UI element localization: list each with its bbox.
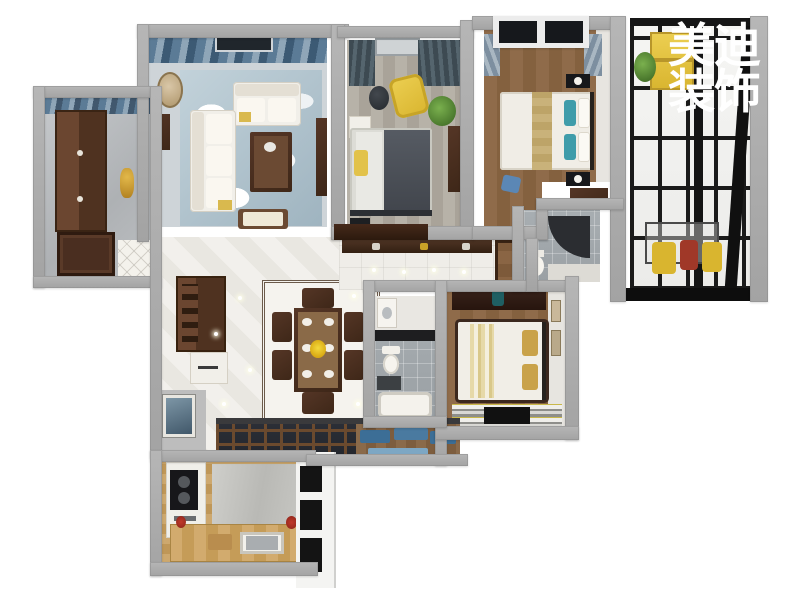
wall-bath-bed3 — [435, 280, 447, 430]
round-side-table — [369, 86, 389, 110]
brand-watermark: 美迪 装饰 — [668, 24, 760, 116]
dining-chair-bottom — [302, 392, 334, 414]
dining-chair-right1 — [344, 312, 364, 342]
ceiling-light — [214, 332, 218, 336]
coffee-table-decor — [264, 142, 276, 152]
middle-bedroom-window — [375, 38, 420, 56]
wall-bed3-right — [565, 276, 579, 440]
plate2 — [324, 318, 334, 326]
wall-laundry-bottom — [306, 454, 468, 466]
plate5 — [302, 370, 312, 378]
wall-kitchen-bottom — [150, 562, 318, 576]
south-striped-rug — [452, 404, 562, 427]
plate6 — [324, 370, 334, 378]
master-window-pane2 — [545, 21, 583, 43]
sofa-left-back — [192, 112, 204, 210]
burner2 — [178, 492, 190, 504]
console-decor3 — [462, 243, 470, 250]
foyer-gold-decor — [120, 168, 134, 198]
sofa-left — [190, 110, 236, 212]
living-bench — [238, 209, 288, 229]
middle-bedroom-dresser — [448, 126, 460, 192]
ceiling-light — [372, 268, 376, 272]
potted-plant — [428, 96, 456, 126]
middle-bedroom-curtain-right — [418, 40, 460, 86]
balcony-chair-yellow2 — [702, 242, 722, 272]
master-bed — [500, 92, 594, 170]
ceiling-light — [238, 296, 242, 300]
sofa-left-cushion1 — [206, 114, 232, 144]
hallway-console — [342, 240, 492, 253]
bathroom-vanity-counter — [377, 298, 397, 328]
ceiling-light — [462, 270, 466, 274]
south-bed-runner — [470, 324, 494, 398]
toilet-bowl — [383, 354, 399, 374]
bath-mat — [377, 376, 401, 390]
foyer-cabinet-panel — [57, 232, 115, 276]
balcony-bottom-frame — [612, 288, 758, 301]
living-room-window — [215, 36, 273, 52]
dining-lower-cabinet — [190, 352, 228, 384]
south-bed-pillow-gold1 — [522, 330, 538, 356]
living-bench-cushion — [243, 212, 283, 226]
wall-bed2-top — [337, 26, 474, 38]
sofa-left-cushion2 — [206, 146, 232, 176]
wall-master-bottom-right — [536, 198, 624, 210]
wall-hall-south — [363, 280, 577, 292]
dining-chair-left2 — [272, 350, 292, 380]
sofa-top-back — [235, 84, 299, 96]
balcony-chair-yellow1 — [652, 242, 676, 274]
master-bed-runner — [532, 92, 552, 170]
coffee-table — [250, 132, 292, 192]
stove — [170, 470, 198, 510]
dining-chair-top — [302, 288, 334, 308]
vanity-sink — [382, 307, 392, 319]
wall-living-top — [137, 24, 349, 38]
sofa-top — [233, 82, 301, 126]
wall-bath-bottom — [363, 416, 447, 428]
master-bed-pillow-white2 — [578, 132, 590, 162]
floorplan-render: 美迪 装饰 — [0, 0, 798, 592]
south-bed — [458, 322, 546, 400]
ceiling-light — [356, 402, 360, 406]
cutting-board — [208, 534, 232, 550]
kitchen-window-pane1 — [300, 466, 322, 492]
wall-kitchen-top — [150, 450, 316, 462]
middle-bed-headboard — [350, 210, 432, 216]
wall-west-spine — [150, 86, 162, 458]
middle-bedroom-curtain-left — [349, 40, 375, 86]
foyer-wardrobe-knob2 — [77, 196, 83, 202]
dining-flowers — [310, 340, 326, 358]
foyer-wardrobe-knob1 — [77, 150, 83, 156]
sofa-top-cushion2 — [268, 98, 296, 122]
balcony-plant — [634, 52, 656, 82]
balcony-chair-red — [680, 240, 698, 270]
toilet-tank — [382, 346, 400, 354]
master-bed-pillow-white1 — [578, 98, 590, 128]
wall-master-right — [610, 16, 626, 302]
wall-hall-right — [526, 238, 538, 292]
middle-bed — [350, 128, 432, 216]
blue-bench-mat1 — [360, 430, 390, 443]
master-lamp-bottom — [574, 175, 582, 183]
master-window-pane1 — [499, 21, 537, 43]
ceiling-light — [402, 270, 406, 274]
toilet — [380, 346, 402, 374]
wall-bed2-master — [460, 20, 474, 238]
sink-basin — [246, 536, 278, 550]
south-wall-art1 — [551, 300, 561, 322]
wall-bath-left — [363, 280, 375, 428]
flowers-red1 — [176, 516, 186, 528]
master-floor-pillow — [501, 174, 522, 193]
wall-living-left — [137, 24, 149, 242]
south-bed-pillow-gold2 — [522, 364, 538, 390]
middle-bed-duvet — [384, 130, 430, 214]
kitchen-sink — [240, 532, 284, 554]
dining-cabinet-handle — [198, 366, 218, 369]
south-bed-headboard — [542, 322, 546, 400]
foyer-wardrobe — [55, 110, 107, 232]
alcove-picture — [166, 398, 192, 434]
blue-bench-mat2 — [394, 428, 428, 440]
wall-living-bed2 — [331, 24, 345, 240]
bathroom-black-counter — [375, 330, 435, 341]
kitchen-counter-bottom — [170, 524, 300, 562]
wall-foyer-left — [33, 86, 45, 288]
bathtub — [378, 392, 432, 418]
brand-watermark-line1: 美迪 — [668, 24, 760, 70]
ceiling-light — [432, 268, 436, 272]
kitchen-window-pane2 — [300, 500, 322, 530]
brand-watermark-line2: 装饰 — [668, 70, 760, 116]
ceiling-light — [222, 402, 226, 406]
master-bed-headboard — [590, 92, 594, 170]
rug-black-mat — [484, 407, 530, 424]
south-wall-art2 — [551, 330, 561, 356]
master-nightstand-bottom — [566, 172, 590, 186]
dining-hutch-shelves — [182, 284, 198, 342]
wall-kitchen-left — [150, 450, 162, 576]
sofa-top-throw — [239, 112, 251, 122]
burner1 — [178, 476, 190, 488]
master-bed-pillow-teal1 — [564, 100, 576, 126]
sofa-left-throw — [218, 200, 232, 210]
tv-wall-strip — [334, 224, 428, 240]
foyer-diamond-mat — [118, 240, 150, 278]
master-bed-pillow-teal2 — [564, 134, 576, 160]
middle-bed-pillow-yellow — [354, 150, 368, 176]
ceiling-light — [352, 294, 356, 298]
console-decor2 — [420, 243, 428, 250]
console-decor1 — [372, 243, 380, 250]
plate1 — [302, 318, 312, 326]
ceiling-light — [248, 368, 252, 372]
master-lamp-top — [574, 77, 582, 85]
dining-table — [294, 308, 342, 392]
master-window-bay — [493, 16, 589, 48]
dining-chair-left1 — [272, 312, 292, 342]
dining-hutch — [176, 276, 226, 352]
tv-console — [316, 118, 327, 196]
wall-foyer-top — [33, 86, 151, 98]
wall-foyer-bottom — [33, 276, 162, 288]
kitchen-marble-center — [212, 464, 300, 526]
wardrobe-teal-decor — [492, 290, 504, 306]
wall-bed3-bottom — [435, 426, 579, 440]
dining-chair-right2 — [344, 350, 364, 380]
master-nightstand-top — [566, 74, 590, 88]
